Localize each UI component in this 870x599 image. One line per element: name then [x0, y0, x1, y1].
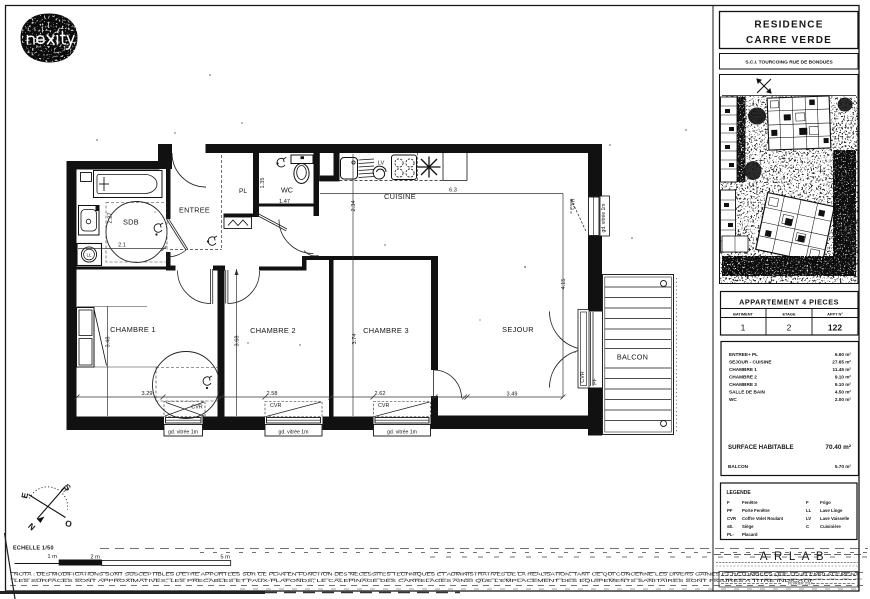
svg-text:6.60 m²: 6.60 m² — [835, 352, 852, 357]
svg-text:Siège: Siège — [742, 524, 754, 529]
svg-text:3.48: 3.48 — [106, 337, 112, 348]
svg-text:9.10 m²: 9.10 m² — [835, 382, 852, 387]
svg-text:sE.: sE. — [727, 524, 733, 529]
svg-text:LV: LV — [806, 516, 811, 521]
svg-text:27.65 m²: 27.65 m² — [832, 360, 851, 365]
svg-text:3.29: 3.29 — [142, 391, 153, 397]
svg-text:PL: PL — [239, 188, 247, 195]
svg-text:BALCON: BALCON — [617, 353, 648, 362]
svg-text:3.49: 3.49 — [507, 392, 518, 398]
svg-text:S.C.I. TOURCOING RUE DE BONDUE: S.C.I. TOURCOING RUE DE BONDUES — [745, 60, 833, 66]
svg-text:gd. vitrée 1m: gd. vitrée 1m — [279, 430, 309, 436]
svg-text:Lave Vaisselle: Lave Vaisselle — [820, 516, 850, 521]
svg-text:SDB: SDB — [123, 218, 139, 227]
svg-text:4.50 m²: 4.50 m² — [835, 390, 852, 395]
svg-text:PF: PF — [593, 378, 599, 384]
svg-text:SURFACE HABITABLE: SURFACE HABITABLE — [728, 444, 794, 451]
svg-text:2.00 m²: 2.00 m² — [835, 397, 852, 402]
svg-text:WC: WC — [281, 186, 293, 195]
svg-text:ECHELLE 1/50: ECHELLE 1/50 — [13, 546, 54, 552]
svg-text:gd. vitrée 1m: gd. vitrée 1m — [601, 204, 607, 233]
svg-text:2.58: 2.58 — [267, 391, 278, 397]
svg-text:Frigo: Frigo — [820, 500, 831, 505]
svg-text:CVR: CVR — [378, 403, 389, 409]
svg-text:CVR: CVR — [580, 371, 586, 382]
svg-text:O: O — [64, 518, 73, 529]
svg-text:2.1: 2.1 — [118, 243, 126, 249]
svg-text:Fenêtre: Fenêtre — [742, 500, 758, 505]
svg-text:BALCON: BALCON — [728, 464, 749, 469]
svg-text:3.68: 3.68 — [235, 336, 241, 347]
svg-text:PF: PF — [727, 508, 733, 513]
svg-text:CHAMBRE 3: CHAMBRE 3 — [729, 382, 757, 387]
svg-text:122: 122 — [828, 323, 842, 333]
svg-text:4.15: 4.15 — [561, 279, 567, 290]
svg-text:CHAMBRE 3: CHAMBRE 3 — [363, 326, 409, 335]
svg-text:1 m: 1 m — [47, 554, 57, 560]
svg-text:gd. vitrée 1m: gd. vitrée 1m — [168, 430, 198, 436]
svg-text:RESIDENCE: RESIDENCE — [754, 20, 823, 31]
svg-text:CVR: CVR — [270, 403, 281, 409]
svg-text:Cuisinière: Cuisinière — [820, 524, 841, 529]
svg-text:2 m: 2 m — [90, 555, 100, 561]
svg-text:LEGENDE: LEGENDE — [727, 490, 752, 496]
svg-text:Placard: Placard — [742, 532, 758, 537]
svg-text:C: C — [806, 524, 809, 529]
svg-text:CHAMBRE 2: CHAMBRE 2 — [250, 326, 296, 335]
svg-text:LL: LL — [86, 253, 92, 258]
svg-text:SEJOUR: SEJOUR — [502, 325, 534, 334]
svg-text:F: F — [727, 500, 730, 505]
svg-text:5.70 m²: 5.70 m² — [835, 464, 852, 469]
svg-text:ENTREE: ENTREE — [179, 206, 210, 215]
svg-text:CVR: CVR — [727, 516, 737, 521]
svg-text:N: N — [26, 521, 37, 533]
svg-text:APPARTEMENT 4 PIECES: APPARTEMENT 4 PIECES — [739, 298, 839, 307]
svg-text:Porte Fenêtre: Porte Fenêtre — [742, 508, 770, 513]
svg-text:2.62: 2.62 — [375, 391, 386, 397]
svg-text:gd. vitrée 1m: gd. vitrée 1m — [387, 430, 417, 436]
svg-text:APPT N°: APPT N° — [827, 312, 843, 317]
svg-text:2.27: 2.27 — [108, 213, 114, 224]
svg-text:2: 2 — [787, 323, 792, 333]
svg-text:11.45 m²: 11.45 m² — [832, 367, 851, 372]
svg-text:CARRE VERDE: CARRE VERDE — [746, 35, 832, 46]
svg-text:WC: WC — [729, 397, 737, 402]
svg-text:2.34: 2.34 — [351, 201, 357, 212]
svg-text:SEJOUR - CUISINE: SEJOUR - CUISINE — [729, 360, 771, 365]
svg-text:BATIMENT: BATIMENT — [733, 312, 753, 317]
svg-text:3.74: 3.74 — [352, 334, 358, 345]
svg-text:5 m: 5 m — [220, 555, 230, 561]
svg-text:F: F — [806, 500, 809, 505]
svg-text:E: E — [19, 491, 30, 499]
svg-text:CVR: CVR — [571, 198, 577, 209]
svg-text:ETAGE: ETAGE — [782, 312, 796, 317]
svg-text:1: 1 — [741, 323, 746, 333]
svg-text:CHAMBRE 1: CHAMBRE 1 — [110, 325, 156, 334]
svg-text:1.47: 1.47 — [279, 199, 290, 205]
svg-text:6.3: 6.3 — [449, 188, 457, 194]
svg-text:Lave Linge: Lave Linge — [820, 508, 843, 513]
svg-text:PL-: PL- — [727, 532, 734, 537]
svg-text:CHAMBRE 2: CHAMBRE 2 — [729, 375, 757, 380]
svg-text:SALLE DE BAIN: SALLE DE BAIN — [729, 390, 766, 395]
svg-text:Coffre Volet Roulant: Coffre Volet Roulant — [742, 516, 784, 521]
svg-text:1.35: 1.35 — [260, 178, 266, 189]
svg-text:ENTREE+ PL: ENTREE+ PL — [729, 352, 758, 357]
svg-text:CHAMBRE 1: CHAMBRE 1 — [729, 367, 757, 372]
svg-text:70.40 m²: 70.40 m² — [825, 444, 851, 451]
svg-text:9.10 m²: 9.10 m² — [835, 375, 852, 380]
svg-text:LL: LL — [806, 508, 812, 513]
svg-text:CVR: CVR — [191, 405, 202, 411]
